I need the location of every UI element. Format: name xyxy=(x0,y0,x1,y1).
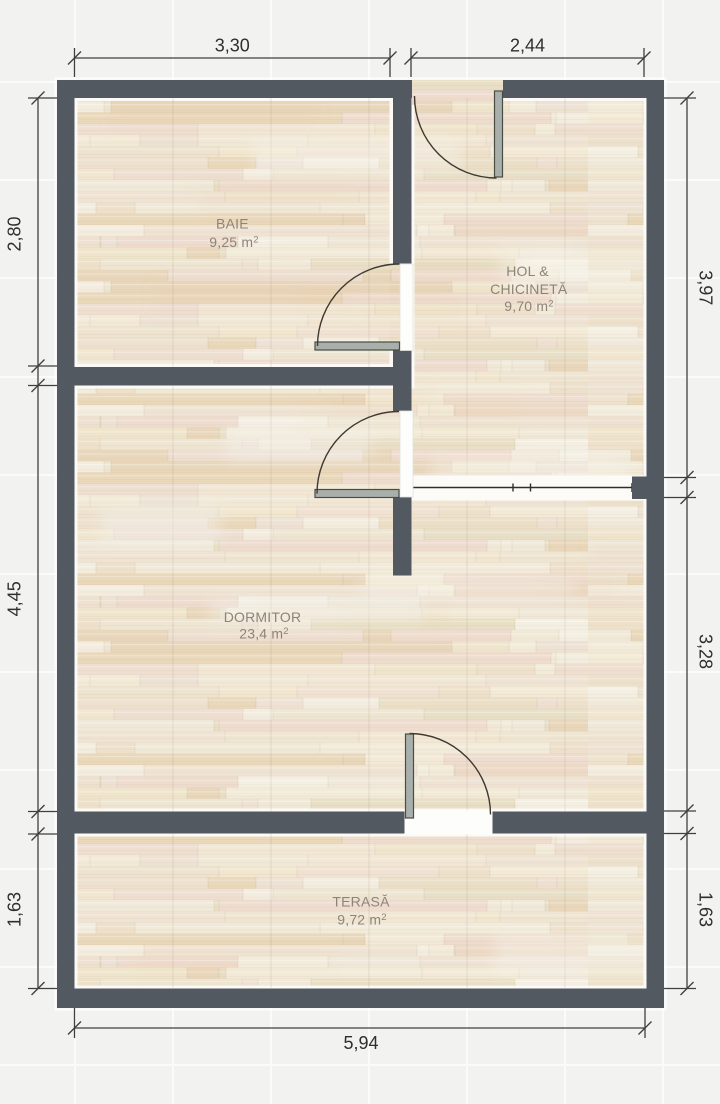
svg-text:HOL &: HOL & xyxy=(506,263,549,279)
svg-text:3,28: 3,28 xyxy=(696,634,716,669)
svg-text:1,63: 1,63 xyxy=(5,892,25,927)
svg-text:CHICINETĂ: CHICINETĂ xyxy=(490,281,568,297)
svg-text:23,4 m2: 23,4 m2 xyxy=(239,626,288,642)
svg-text:2,44: 2,44 xyxy=(510,36,545,56)
svg-text:9,72 m2: 9,72 m2 xyxy=(337,912,386,928)
svg-text:DORMITOR: DORMITOR xyxy=(224,609,302,625)
svg-text:BAIE: BAIE xyxy=(216,216,249,232)
svg-text:4,45: 4,45 xyxy=(5,581,25,616)
svg-text:9,25 m2: 9,25 m2 xyxy=(209,234,258,250)
svg-text:3,30: 3,30 xyxy=(215,36,250,56)
svg-text:5,94: 5,94 xyxy=(343,1033,378,1053)
svg-text:9,70 m2: 9,70 m2 xyxy=(504,298,553,314)
svg-text:TERASĂ: TERASĂ xyxy=(332,894,390,910)
svg-text:1,63: 1,63 xyxy=(696,892,716,927)
svg-text:3,97: 3,97 xyxy=(696,270,716,305)
svg-text:2,80: 2,80 xyxy=(5,216,25,251)
